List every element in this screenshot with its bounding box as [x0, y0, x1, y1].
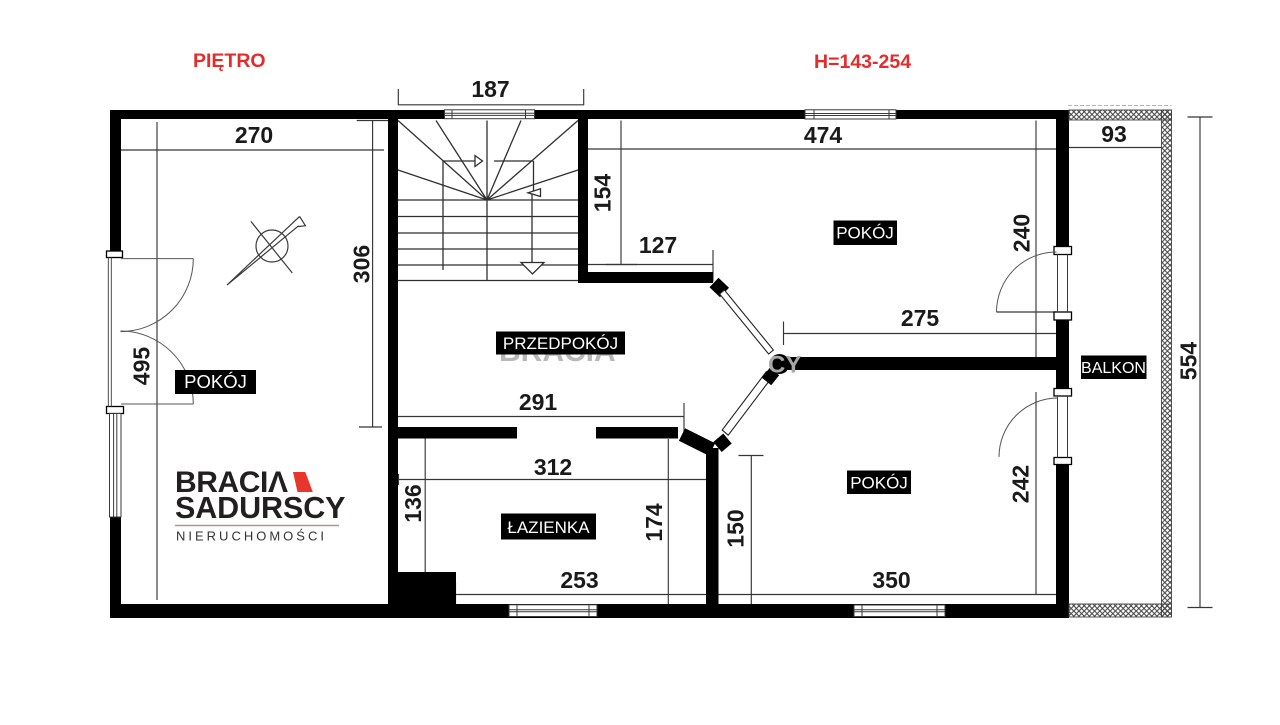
svg-text:154: 154	[590, 174, 616, 213]
svg-text:275: 275	[901, 305, 940, 331]
svg-text:PRZEDPOKÓJ: PRZEDPOKÓJ	[503, 334, 618, 353]
svg-text:PIĘTRO: PIĘTRO	[193, 50, 266, 72]
svg-text:187: 187	[471, 76, 509, 102]
svg-text:253: 253	[560, 567, 598, 593]
svg-text:174: 174	[641, 503, 667, 542]
svg-text:NIERUCHOMOŚCI: NIERUCHOMOŚCI	[176, 529, 327, 544]
svg-text:495: 495	[129, 347, 155, 386]
svg-text:POKÓJ: POKÓJ	[184, 371, 247, 392]
svg-text:SADURSCY: SADURSCY	[175, 491, 345, 525]
svg-text:ŁAZIENKA: ŁAZIENKA	[507, 518, 590, 537]
svg-text:312: 312	[534, 454, 572, 480]
svg-text:150: 150	[723, 509, 749, 547]
svg-text:H=143-254: H=143-254	[814, 51, 911, 73]
svg-text:242: 242	[1008, 465, 1034, 503]
svg-text:BALKON: BALKON	[1081, 360, 1146, 377]
svg-text:474: 474	[804, 122, 843, 148]
svg-text:CY: CY	[768, 352, 801, 379]
svg-text:554: 554	[1176, 342, 1202, 381]
svg-text:240: 240	[1009, 214, 1035, 252]
svg-text:93: 93	[1101, 121, 1127, 147]
svg-text:136: 136	[400, 484, 426, 522]
svg-text:306: 306	[349, 245, 375, 283]
svg-text:350: 350	[872, 567, 910, 593]
svg-text:127: 127	[639, 232, 677, 258]
svg-text:270: 270	[235, 122, 273, 148]
svg-text:POKÓJ: POKÓJ	[850, 474, 908, 493]
svg-text:POKÓJ: POKÓJ	[836, 224, 894, 243]
svg-text:291: 291	[519, 389, 558, 415]
